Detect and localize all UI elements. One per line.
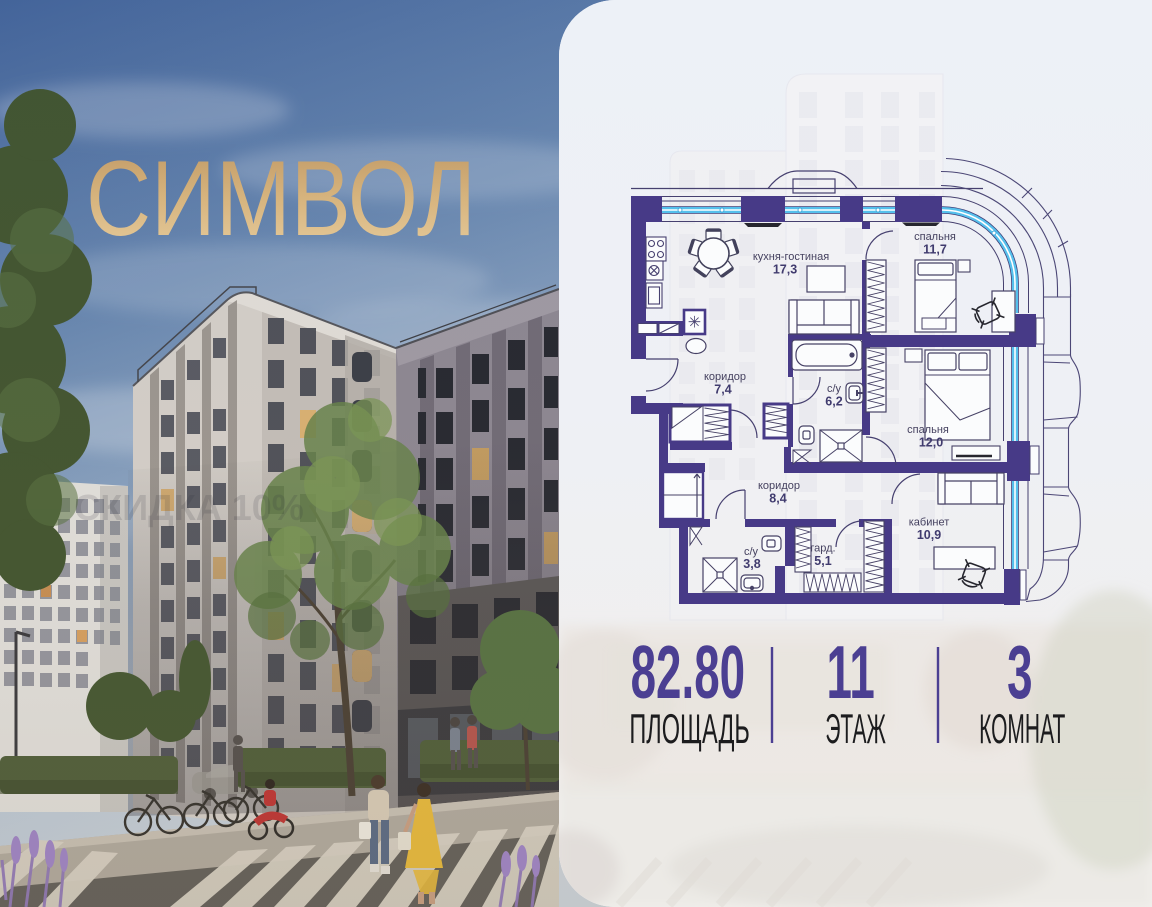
svg-text:СКИДКА 10%: СКИДКА 10% bbox=[74, 487, 304, 528]
